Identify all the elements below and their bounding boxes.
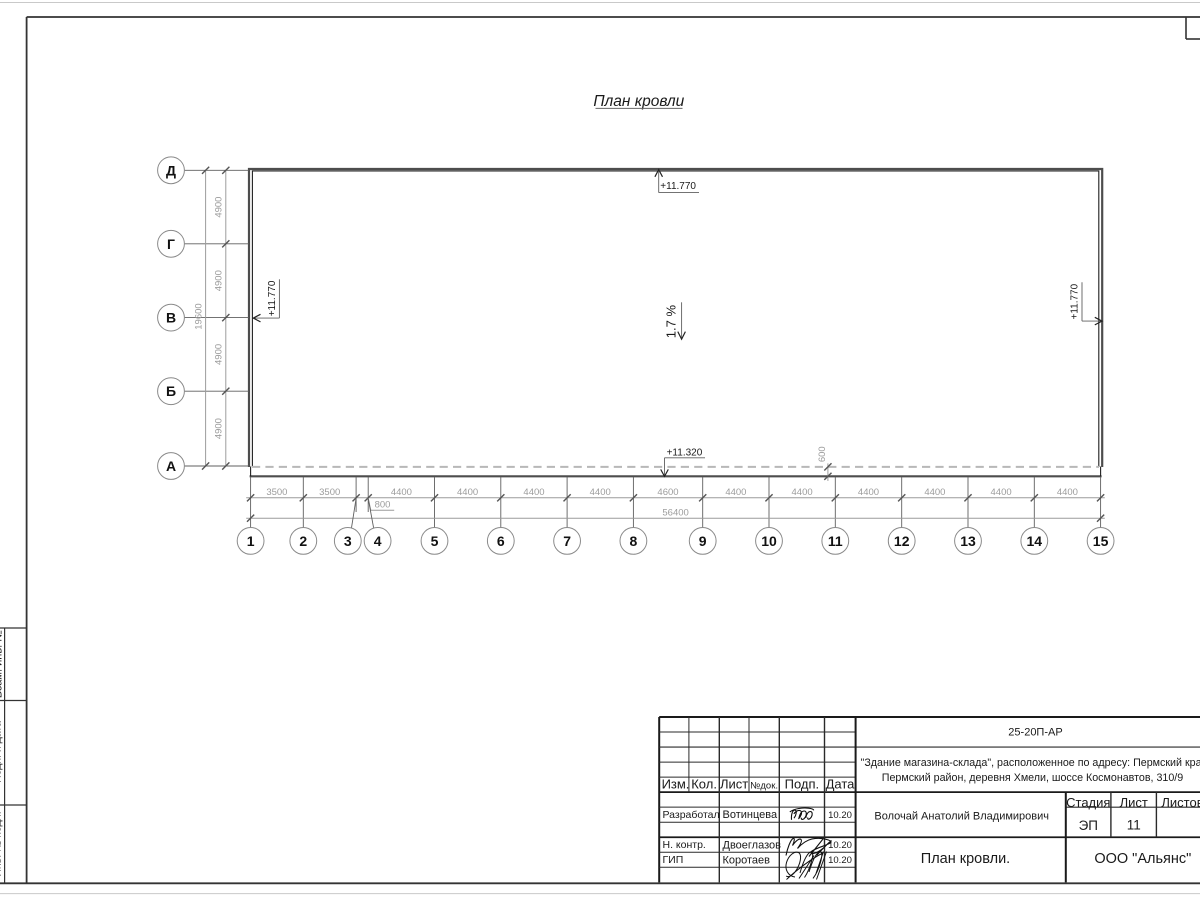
svg-text:Разработал: Разработал (663, 809, 720, 821)
svg-text:Лист: Лист (1120, 795, 1148, 810)
svg-text:6: 6 (497, 533, 505, 549)
svg-text:"Здание магазина-склада", расп: "Здание магазина-склада", расположенное … (861, 757, 1200, 769)
svg-text:В: В (166, 310, 176, 326)
svg-text:4400: 4400 (725, 487, 746, 498)
svg-text:+11.770: +11.770 (1070, 283, 1081, 319)
svg-text:9: 9 (699, 533, 707, 549)
svg-text:3: 3 (344, 533, 352, 549)
svg-text:+11.770: +11.770 (267, 280, 278, 316)
svg-text:+11.320: +11.320 (667, 447, 703, 458)
svg-text:Подп. и дата: Подп. и дата (0, 721, 4, 783)
svg-text:Лист: Лист (720, 777, 748, 792)
svg-text:7: 7 (563, 533, 571, 549)
svg-text:ООО "Альянс": ООО "Альянс" (1094, 851, 1191, 867)
svg-text:Листов: Листов (1161, 795, 1200, 810)
svg-text:13: 13 (960, 533, 976, 549)
svg-text:4400: 4400 (991, 487, 1012, 498)
svg-text:1: 1 (247, 533, 255, 549)
svg-text:2: 2 (299, 533, 307, 549)
svg-text:4400: 4400 (792, 487, 813, 498)
svg-text:4400: 4400 (457, 487, 478, 498)
svg-text:4900: 4900 (214, 418, 225, 439)
svg-text:Взам. инв. №: Взам. инв. № (0, 630, 5, 698)
svg-text:План кровли.: План кровли. (921, 851, 1010, 867)
svg-text:Двоеглазов: Двоеглазов (723, 839, 782, 851)
svg-text:4400: 4400 (523, 487, 544, 498)
svg-text:11: 11 (1127, 817, 1141, 832)
svg-text:План кровли: План кровли (593, 93, 684, 110)
svg-text:Дата: Дата (826, 777, 856, 792)
svg-text:1.7 %: 1.7 % (663, 305, 678, 339)
svg-text:5: 5 (431, 533, 439, 549)
svg-text:Стадия: Стадия (1066, 795, 1110, 810)
svg-text:10: 10 (761, 533, 777, 549)
svg-text:Кол.: Кол. (691, 777, 717, 792)
svg-text:Подп.: Подп. (785, 777, 820, 792)
svg-text:4: 4 (374, 533, 382, 549)
svg-text:3500: 3500 (266, 487, 287, 498)
svg-text:10.20: 10.20 (828, 810, 852, 821)
svg-text:4900: 4900 (214, 344, 225, 365)
svg-text:19600: 19600 (193, 303, 204, 329)
svg-text:Н. контр.: Н. контр. (663, 839, 706, 851)
svg-text:Д: Д (166, 162, 176, 178)
svg-text:Коротаев: Коротаев (723, 854, 771, 866)
svg-text:4400: 4400 (858, 487, 879, 498)
svg-text:10.20: 10.20 (828, 840, 852, 851)
svg-text:10.20: 10.20 (828, 855, 852, 866)
svg-text:4900: 4900 (214, 197, 225, 218)
svg-text:15: 15 (1093, 533, 1109, 549)
svg-text:4900: 4900 (214, 270, 225, 291)
svg-text:Пермский район, деревня Хмели,: Пермский район, деревня Хмели, шоссе Кос… (882, 772, 1183, 784)
svg-text:4400: 4400 (924, 487, 945, 498)
svg-text:ГИП: ГИП (663, 854, 684, 866)
svg-text:Изм.: Изм. (662, 777, 690, 792)
svg-text:12: 12 (894, 533, 910, 549)
svg-text:Инв. № подл.: Инв. № подл. (0, 811, 4, 876)
svg-text:№док.: №док. (750, 781, 778, 792)
svg-text:4400: 4400 (590, 487, 611, 498)
svg-text:4400: 4400 (1057, 487, 1078, 498)
svg-text:800: 800 (375, 500, 391, 511)
svg-text:Г: Г (167, 236, 175, 252)
svg-text:56400: 56400 (662, 507, 688, 518)
svg-text:25-20П-АР: 25-20П-АР (1008, 727, 1062, 739)
svg-text:Вотинцева: Вотинцева (723, 809, 778, 821)
svg-text:Волочай Анатолий Владимирович: Волочай Анатолий Владимирович (874, 811, 1049, 823)
svg-text:ЭП: ЭП (1079, 818, 1098, 833)
svg-text:600: 600 (817, 446, 828, 462)
svg-text:+11.770: +11.770 (660, 181, 696, 192)
svg-text:14: 14 (1027, 533, 1043, 549)
svg-text:А: А (166, 458, 176, 474)
svg-text:3500: 3500 (319, 487, 340, 498)
svg-text:Б: Б (166, 383, 176, 399)
svg-text:4400: 4400 (391, 487, 412, 498)
svg-text:4600: 4600 (657, 487, 678, 498)
svg-text:11: 11 (828, 533, 843, 549)
svg-text:8: 8 (630, 533, 638, 549)
